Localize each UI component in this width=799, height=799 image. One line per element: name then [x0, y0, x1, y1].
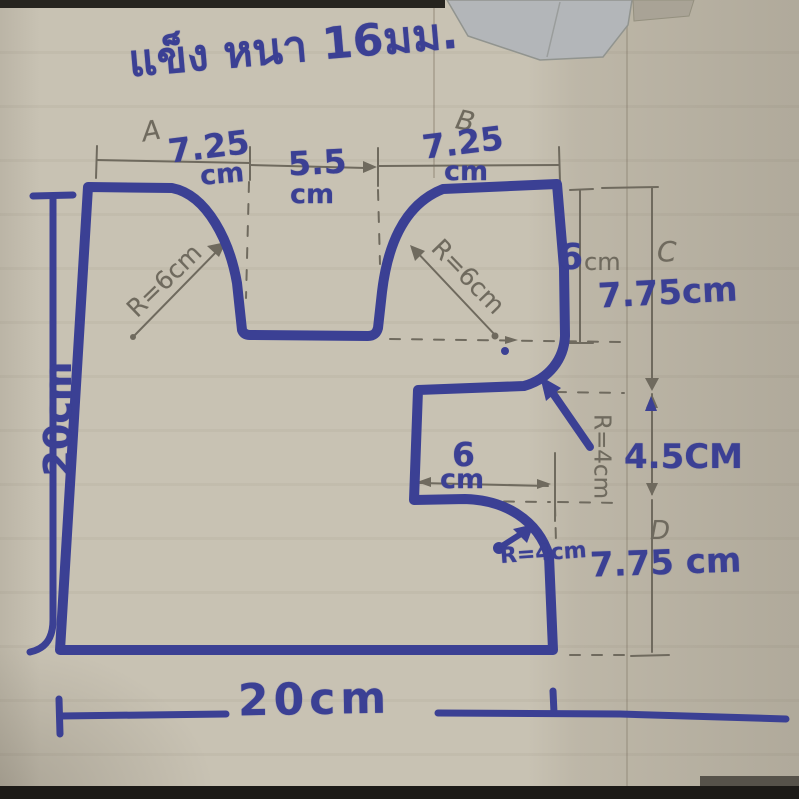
dim-right-upper: 7.75cm: [597, 272, 738, 313]
point-label-c: C: [657, 238, 677, 266]
dim-top-middle-unit: cm: [290, 181, 334, 208]
dim-bottom-total: 20cm: [238, 677, 392, 724]
radius-label-bottom-step: R=4cm: [499, 540, 587, 568]
dim-top-left-unit: cm: [199, 159, 245, 190]
pencil-dimension-lines: [96, 146, 669, 656]
dim-notch-depth-value: 6: [558, 240, 583, 276]
template-shape-outline: [60, 184, 565, 650]
bottom-dim-20cm-tick: [553, 691, 554, 713]
bottom-dim-line-right: [438, 713, 786, 719]
dim-left-total: 20cm: [39, 359, 77, 479]
dim-right-lower: 7.75 cm: [589, 543, 741, 582]
dim-right-middle: 4.5CM: [624, 440, 743, 474]
cardboard-photo: แข็ง หนา 16มม. A 7.25 cm 5.5 cm B 7.25 c…: [0, 0, 799, 799]
bottom-dim-line-left: [60, 714, 226, 716]
dim-top-middle-value: 5.5: [287, 144, 347, 180]
radius-label-middle-right: R=4cm: [590, 414, 613, 500]
dim-notch-depth-unit: cm: [584, 250, 621, 274]
diagram-linework: [0, 0, 799, 799]
tape-piece: [447, 0, 694, 60]
point-label-d: D: [650, 518, 670, 544]
dim-step-width-unit: cm: [440, 466, 484, 493]
dim-top-right-unit: cm: [444, 158, 488, 185]
